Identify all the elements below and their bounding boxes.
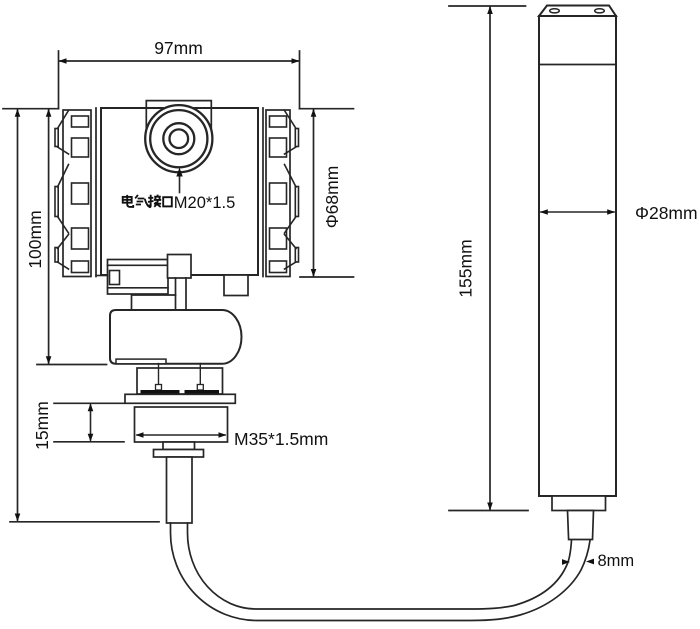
svg-text:100mm: 100mm (25, 210, 45, 268)
svg-text:15mm: 15mm (32, 401, 52, 450)
svg-text:155mm: 155mm (456, 239, 476, 297)
svg-text:Φ28mm: Φ28mm (635, 203, 698, 223)
svg-text:8mm: 8mm (598, 552, 635, 570)
svg-text:M20*1.5: M20*1.5 (174, 194, 235, 212)
svg-text:Φ68mm: Φ68mm (322, 166, 342, 229)
svg-text:97mm: 97mm (154, 38, 203, 58)
svg-text:M35*1.5mm: M35*1.5mm (234, 429, 328, 449)
